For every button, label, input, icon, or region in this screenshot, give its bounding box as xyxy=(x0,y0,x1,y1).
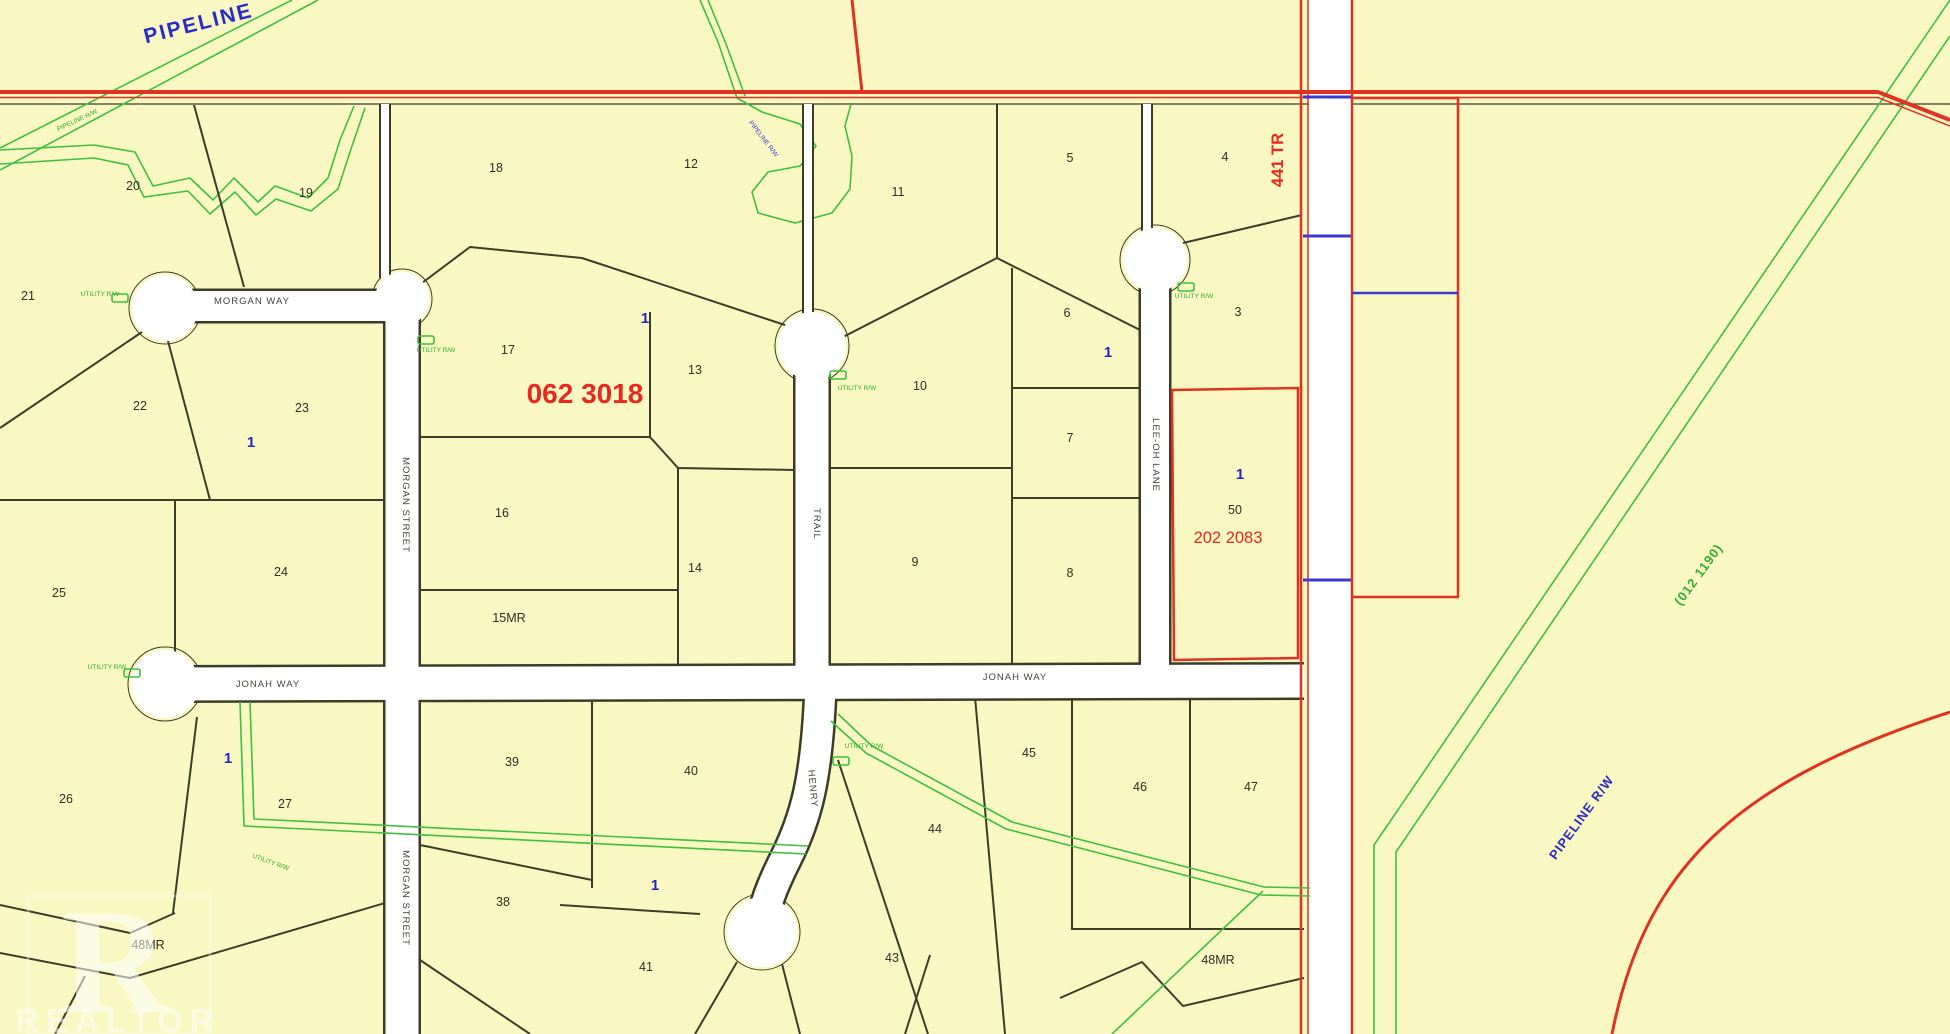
lot-label-41: 41 xyxy=(639,960,653,974)
plat-map-viewport: 2019181211542122231713631071614985024251… xyxy=(0,0,1950,1034)
plan-number-441-tr: 441 TR xyxy=(1269,133,1287,187)
highway-corridor xyxy=(1301,0,1352,1034)
street-label-morgan-street: MORGAN STREET xyxy=(400,850,411,946)
unit-count-1: 1 xyxy=(651,877,659,894)
utility-rw-label: UTILITY R/W xyxy=(838,385,877,392)
utility-rw-label: UTILITY R/W xyxy=(1175,293,1214,300)
lot-label-44: 44 xyxy=(928,822,942,836)
lot-label-38: 38 xyxy=(496,895,510,909)
street-label-jonah-way: JONAH WAY xyxy=(236,679,300,690)
lot-label-19: 19 xyxy=(299,186,313,200)
reserve-label-48mr-east: 48MR xyxy=(1201,953,1234,967)
plat-map: 2019181211542122231713631071614985024251… xyxy=(0,0,1950,1034)
street-label-lee-oh-lane: LEE-OH LANE xyxy=(1150,418,1161,492)
lot-label-5: 5 xyxy=(1067,151,1074,165)
utility-rw-label: UTILITY R/W xyxy=(81,291,120,298)
lot-label-20: 20 xyxy=(126,179,140,193)
lot-label-14: 14 xyxy=(688,561,702,575)
reserve-label-15mr: 15MR xyxy=(492,611,525,625)
lot-label-10: 10 xyxy=(913,379,927,393)
plan-number-202-2083: 202 2083 xyxy=(1194,529,1263,547)
lot-label-45: 45 xyxy=(1022,746,1036,760)
lot-label-46: 46 xyxy=(1133,780,1147,794)
lot-label-39: 39 xyxy=(505,755,519,769)
lot-label-17: 17 xyxy=(501,343,515,357)
lot-label-25: 25 xyxy=(52,586,66,600)
lot-label-21: 21 xyxy=(21,289,35,303)
unit-count-1: 1 xyxy=(247,434,255,451)
lot-label-8: 8 xyxy=(1067,566,1074,580)
lot-label-18: 18 xyxy=(489,161,503,175)
lot-label-23: 23 xyxy=(295,401,309,415)
lot-label-12: 12 xyxy=(684,157,698,171)
street-label-morgan-way: MORGAN WAY xyxy=(214,296,290,307)
lot-label-6: 6 xyxy=(1064,306,1071,320)
lot-label-13: 13 xyxy=(688,363,702,377)
unit-count-1: 1 xyxy=(1236,466,1244,483)
lot-label-43: 43 xyxy=(885,951,899,965)
lot-label-24: 24 xyxy=(274,565,288,579)
utility-rw-label: UTILITY R/W xyxy=(845,743,884,750)
street-label-jonah-way: JONAH WAY xyxy=(983,672,1047,683)
utility-rw-label: UTILITY R/W xyxy=(88,664,127,671)
lot-label-7: 7 xyxy=(1067,431,1074,445)
lot-label-22: 22 xyxy=(133,399,147,413)
plan-number-062-3018: 062 3018 xyxy=(527,378,644,409)
street-label-trail: TRAIL xyxy=(811,508,822,540)
lot-label-11: 11 xyxy=(892,185,905,199)
lot-label-27: 27 xyxy=(278,797,292,811)
unit-count-1: 1 xyxy=(1104,344,1112,361)
lot-label-3: 3 xyxy=(1235,305,1242,319)
watermark-word: REALTOR xyxy=(15,1002,220,1034)
lot-label-16: 16 xyxy=(495,506,509,520)
unit-count-1: 1 xyxy=(224,750,232,767)
lot-label-40: 40 xyxy=(684,764,698,778)
lot-label-26: 26 xyxy=(59,792,73,806)
lot-label-9: 9 xyxy=(912,555,919,569)
lot-label-47: 47 xyxy=(1244,780,1258,794)
lot-label-4: 4 xyxy=(1222,150,1229,164)
utility-rw-label: UTILITY R/W xyxy=(417,347,456,354)
map-background xyxy=(0,0,1950,1034)
lot-label-50: 50 xyxy=(1228,503,1242,517)
street-label-morgan-street: MORGAN STREET xyxy=(400,457,411,553)
unit-count-1: 1 xyxy=(641,310,649,327)
